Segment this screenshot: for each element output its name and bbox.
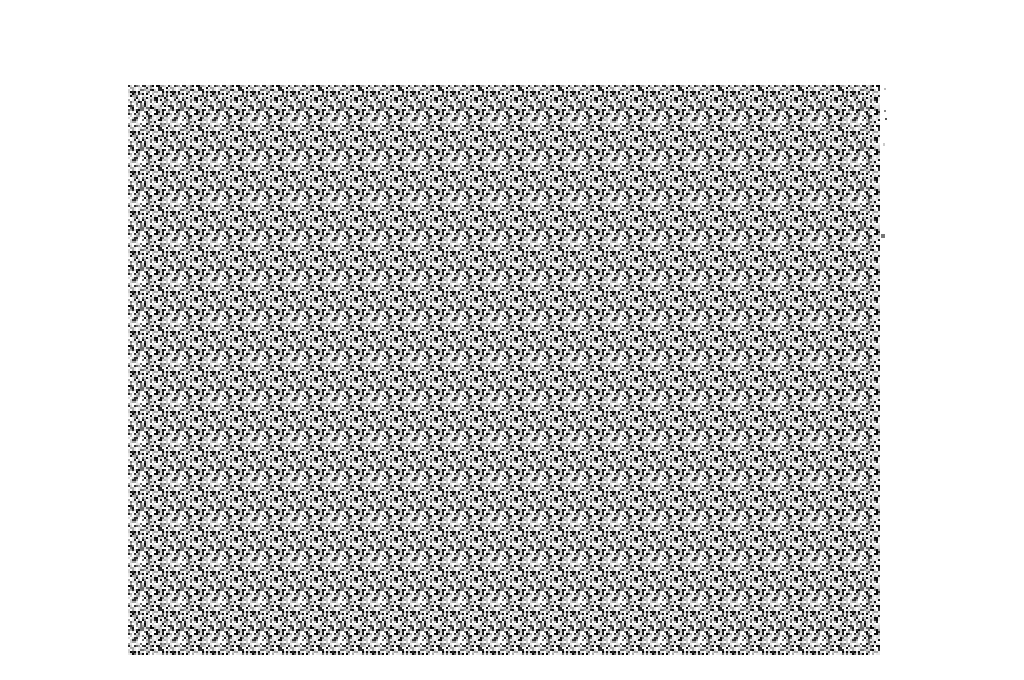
noise-static-image xyxy=(128,85,880,655)
page-background xyxy=(0,0,1024,680)
stray-speck xyxy=(884,110,886,112)
stray-speck xyxy=(883,143,885,146)
stray-speck xyxy=(881,234,885,238)
stray-speck xyxy=(884,88,886,90)
stray-speck xyxy=(885,118,887,120)
